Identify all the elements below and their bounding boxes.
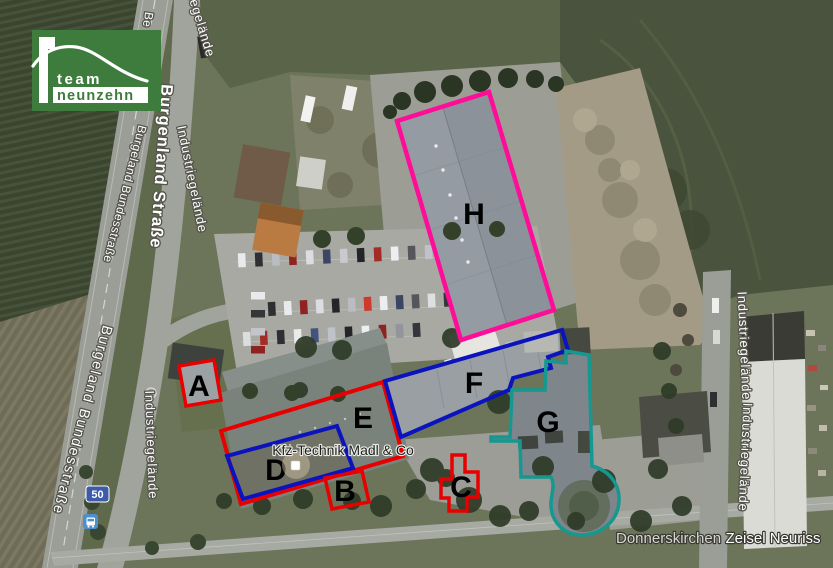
route-number: 50 bbox=[91, 489, 103, 501]
place-label-donnerskirchen: Donnerskirchen Zeisel Neuriss bbox=[616, 530, 821, 547]
building-label-e: E bbox=[353, 402, 373, 435]
street-label-be-fragment: Be bbox=[140, 11, 156, 29]
building-label-a: A bbox=[188, 370, 210, 403]
logo-neunzehn-text: neunzehn bbox=[57, 88, 134, 104]
building-label-c: C bbox=[450, 471, 472, 504]
bus-stop-icon bbox=[83, 514, 98, 529]
map-canvas[interactable]: A B C D E F G H Burgenland Straße Burgel… bbox=[0, 0, 833, 568]
map-screenshot: A B C D E F G H Burgenland Straße Burgel… bbox=[0, 0, 833, 568]
company-logo: team neunzehn bbox=[32, 30, 161, 111]
building-label-f: F bbox=[465, 367, 483, 400]
building-label-h: H bbox=[463, 198, 485, 231]
area-name: Zeisel Neuriss bbox=[726, 530, 821, 547]
poi-marker-icon bbox=[291, 461, 300, 470]
logo-team-text: team bbox=[57, 71, 102, 88]
building-label-b: B bbox=[334, 475, 356, 508]
building-label-g: G bbox=[536, 406, 559, 439]
business-label-kfz: Kfz-Technik Madl & Co bbox=[272, 442, 414, 458]
route-badge: 50 bbox=[86, 486, 109, 502]
district-name: Donnerskirchen bbox=[616, 530, 721, 547]
